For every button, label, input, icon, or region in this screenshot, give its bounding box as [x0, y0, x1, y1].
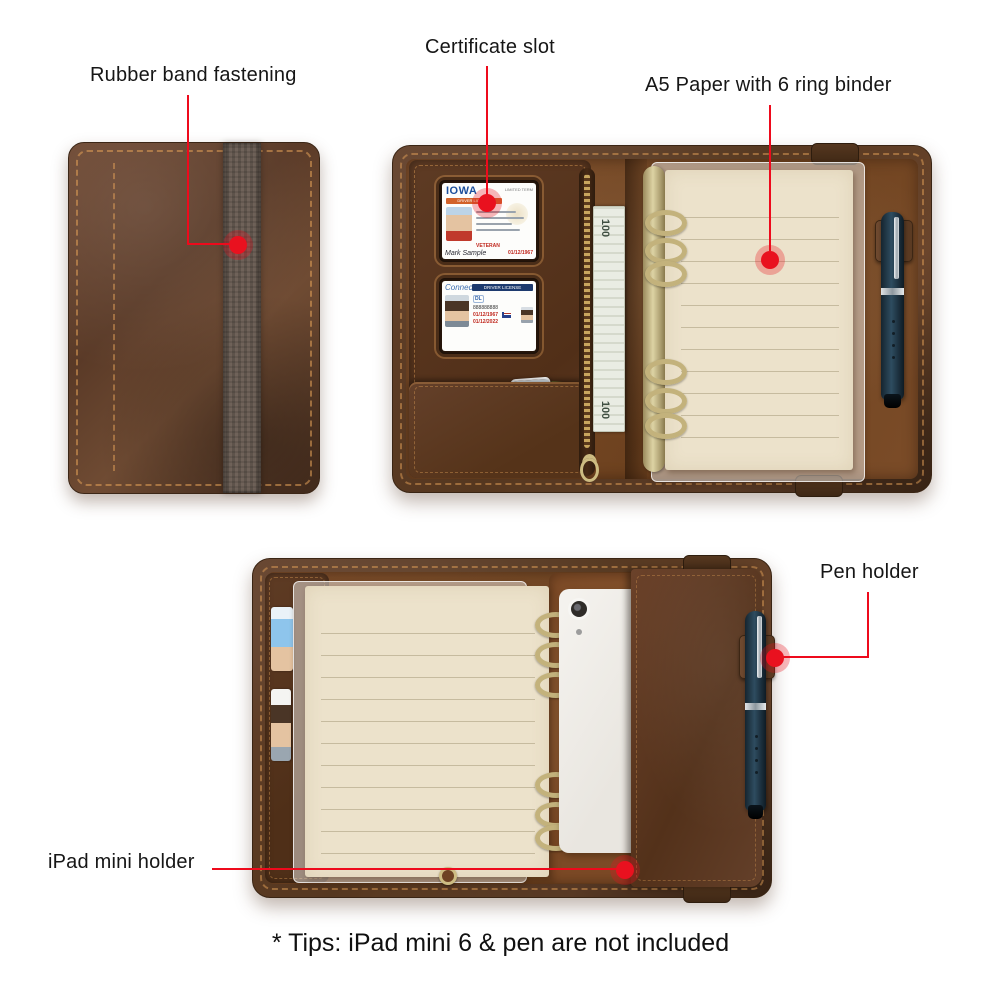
binder-ring [645, 359, 687, 385]
ruled-lines [681, 196, 839, 456]
card-text-line [476, 217, 524, 219]
card-type-banner: DRIVER LICENSE [472, 284, 533, 291]
tips-note: * Tips: iPad mini 6 & pen are not includ… [0, 929, 1001, 958]
signature-text: Mark Sample [445, 250, 486, 257]
capitol-watermark [506, 203, 528, 225]
label-ipad-mini-holder: iPad mini holder [48, 851, 195, 874]
callout-dot-certificate-slot [478, 194, 496, 212]
callout-line [783, 656, 869, 658]
pen-clip [894, 217, 899, 279]
tucked-card-edge [271, 689, 291, 761]
card-term-text: LIMITED TERM [505, 187, 533, 192]
zipper-teeth [584, 174, 590, 448]
stitch-border [76, 150, 312, 486]
open-organizer-ipad [252, 558, 772, 898]
card-date: 01/12/1967 [508, 250, 533, 256]
veteran-text: VETERAN [476, 243, 500, 249]
label-pen-holder: Pen holder [820, 561, 919, 584]
camera-lens-icon [571, 601, 587, 617]
callout-line [486, 66, 488, 196]
callout-dot-rubber-band [229, 236, 247, 254]
pen-dots [755, 735, 758, 738]
card-state-name: IOWA [446, 185, 477, 197]
callout-line [187, 243, 233, 245]
closed-notebook [68, 142, 320, 494]
card-date: 01/12/1967 [473, 312, 498, 318]
pen-body [881, 212, 904, 400]
card-date: 01/12/2022 [473, 319, 498, 325]
card-number: 888888888 [473, 305, 498, 311]
card-text-line [476, 211, 516, 213]
stitch-border [636, 575, 756, 881]
banknote-stack: 100 100 [593, 206, 625, 432]
banknote-denomination: 100 [599, 401, 611, 419]
portrait-photo [446, 207, 472, 241]
ruled-lines [321, 612, 535, 863]
callout-dot-ipad-holder [616, 861, 634, 879]
stitch-border [414, 386, 586, 473]
secondary-photo [521, 307, 533, 323]
microphone-dot-icon [576, 629, 582, 635]
pen-tip [748, 805, 763, 819]
ipad-holder-flap [631, 569, 762, 887]
callout-dot-a5-paper [761, 251, 779, 269]
binder-ring [645, 261, 687, 287]
a5-lined-paper [305, 586, 549, 877]
binder-ring [645, 388, 687, 414]
card-class-text: DL [473, 295, 484, 303]
a5-lined-paper [665, 170, 853, 470]
callout-line [212, 868, 617, 870]
pen-dots [892, 320, 895, 323]
stitch-line [113, 163, 115, 471]
card-text-line [476, 223, 512, 225]
pen-clip [757, 616, 762, 678]
binder-ring [645, 210, 687, 236]
pen-band [745, 703, 766, 710]
certificate-slot-window: IOWA LIMITED TERM DRIVER LICENSE VETERAN… [439, 180, 539, 262]
open-organizer-interior: IOWA LIMITED TERM DRIVER LICENSE VETERAN… [392, 145, 932, 493]
pen-body [745, 611, 766, 811]
binder-ring [645, 413, 687, 439]
label-rubber-band-fastening: Rubber band fastening [90, 64, 297, 87]
fountain-pen [745, 611, 766, 811]
banknote-denomination: 100 [599, 219, 611, 237]
label-a5-paper: A5 Paper with 6 ring binder [645, 74, 892, 97]
card-text-line [476, 229, 520, 231]
callout-line [867, 592, 869, 658]
pen-band [881, 288, 904, 295]
portrait-photo [445, 295, 469, 327]
front-pocket [409, 382, 591, 478]
callout-dot-pen-holder [766, 649, 784, 667]
pen-tip [884, 394, 900, 408]
rubber-band [223, 143, 261, 493]
label-certificate-slot: Certificate slot [425, 36, 555, 59]
callout-line [187, 95, 189, 244]
fountain-pen [881, 212, 904, 400]
product-feature-infographic: IOWA LIMITED TERM DRIVER LICENSE VETERAN… [0, 0, 1001, 1001]
callout-line [769, 105, 771, 251]
tucked-card-edge [271, 607, 293, 671]
id-card-window: Connecticut DRIVER LICENSE DL 888888888 … [439, 278, 539, 354]
connecticut-driver-license-card: Connecticut DRIVER LICENSE DL 888888888 … [442, 281, 536, 351]
us-flag-icon [502, 312, 511, 318]
zipper-pull-icon [580, 458, 599, 482]
